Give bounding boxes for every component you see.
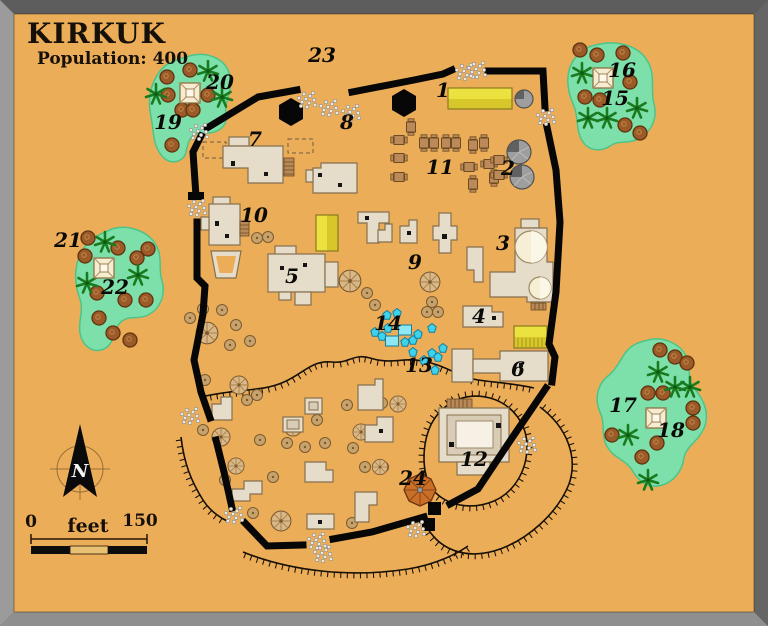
tree-icon bbox=[680, 356, 694, 370]
cliff-tick bbox=[572, 457, 577, 458]
tree-icon bbox=[635, 450, 649, 464]
cliff-tick bbox=[419, 448, 424, 449]
hut-icon bbox=[312, 415, 323, 426]
hut-icon bbox=[185, 313, 196, 324]
scale-unit: feet bbox=[67, 515, 108, 537]
hut-icon bbox=[282, 438, 293, 449]
scale-start: 0 bbox=[25, 512, 37, 532]
tree-icon bbox=[160, 70, 174, 84]
wall-tower-south-1 bbox=[428, 502, 441, 515]
market-stall-icon bbox=[442, 135, 451, 151]
tree-icon bbox=[641, 386, 655, 400]
cliff-tick bbox=[476, 506, 477, 511]
cliff-tick bbox=[478, 380, 479, 385]
tree-icon bbox=[92, 311, 106, 325]
cliff-tick bbox=[321, 571, 322, 576]
map-page: 123456789101112131415161718192021222324 … bbox=[0, 0, 768, 626]
tree-icon bbox=[686, 416, 700, 430]
marker-15: 15 bbox=[601, 86, 629, 110]
cliff-tick bbox=[510, 384, 511, 389]
market-stall-icon bbox=[469, 137, 478, 153]
market-stall-icon bbox=[391, 136, 407, 145]
marker-22: 22 bbox=[100, 275, 129, 299]
hut-icon bbox=[248, 508, 259, 519]
marker-17: 17 bbox=[609, 393, 637, 417]
marker-21: 21 bbox=[53, 228, 82, 252]
yellow-house-center bbox=[316, 215, 338, 251]
tree-icon bbox=[573, 43, 587, 57]
marker-5: 5 bbox=[285, 264, 299, 288]
hut-icon bbox=[242, 395, 253, 406]
tree-icon bbox=[578, 90, 592, 104]
tree-icon bbox=[130, 251, 144, 265]
tree-icon bbox=[653, 343, 667, 357]
marker-3: 3 bbox=[496, 231, 510, 255]
tent-icon bbox=[228, 458, 244, 474]
tree-icon bbox=[106, 326, 120, 340]
tree-icon bbox=[186, 103, 200, 117]
hut-icon bbox=[245, 336, 256, 347]
marker-23: 23 bbox=[307, 43, 336, 67]
market-stall-icon bbox=[469, 176, 478, 192]
market-stall-icon bbox=[407, 119, 416, 135]
hut-icon bbox=[362, 288, 373, 299]
tent-icon bbox=[339, 270, 361, 292]
scale-end: 150 bbox=[122, 511, 158, 531]
hut-icon bbox=[320, 438, 331, 449]
market-stall-icon bbox=[391, 173, 407, 182]
market-stall-icon bbox=[430, 135, 439, 151]
hut-icon bbox=[360, 462, 371, 473]
hut-icon bbox=[217, 305, 228, 316]
marker-9: 9 bbox=[408, 250, 422, 274]
tent-icon bbox=[420, 272, 440, 292]
building-6 bbox=[452, 349, 548, 382]
map-subtitle: Population: 400 bbox=[37, 49, 188, 69]
market-stall-icon bbox=[420, 135, 429, 151]
marker-13: 13 bbox=[405, 353, 433, 377]
house-near-7 bbox=[306, 163, 357, 193]
marker-7: 7 bbox=[248, 127, 262, 151]
hut-icon bbox=[422, 307, 433, 318]
marker-20: 20 bbox=[205, 70, 234, 94]
tree-icon bbox=[605, 428, 619, 442]
tree-icon bbox=[81, 231, 95, 245]
marker-10: 10 bbox=[240, 203, 268, 227]
tree-icon bbox=[139, 293, 153, 307]
market-stall-icon bbox=[480, 135, 489, 151]
marker-18: 18 bbox=[657, 418, 685, 442]
cliff-tick bbox=[393, 571, 394, 576]
cliff-tick bbox=[399, 570, 400, 575]
marker-12: 12 bbox=[460, 447, 488, 471]
marker-2: 2 bbox=[500, 156, 515, 180]
cliff-tick bbox=[314, 570, 315, 575]
market-stall-icon bbox=[461, 163, 477, 172]
marker-1: 1 bbox=[436, 78, 450, 102]
cliff-tick bbox=[497, 382, 498, 387]
hut-icon bbox=[268, 472, 279, 483]
tree-icon bbox=[165, 138, 179, 152]
tent-icon bbox=[271, 511, 291, 531]
marker-16: 16 bbox=[608, 58, 636, 82]
tent-icon bbox=[230, 376, 248, 394]
tree-icon bbox=[633, 126, 647, 140]
water-pool-icon bbox=[386, 336, 399, 346]
tent-icon bbox=[390, 396, 406, 412]
marker-4: 4 bbox=[472, 304, 486, 328]
cliff-tick bbox=[359, 357, 360, 362]
marker-14: 14 bbox=[374, 311, 402, 335]
cliff-tick bbox=[482, 553, 483, 558]
tree-icon bbox=[590, 48, 604, 62]
tree-icon bbox=[686, 401, 700, 415]
frame-bottom bbox=[0, 612, 768, 626]
cliff-tick bbox=[484, 381, 485, 386]
north-label: N bbox=[71, 461, 90, 482]
hut-icon bbox=[300, 442, 311, 453]
cliff-tick bbox=[491, 382, 492, 387]
frame-top bbox=[0, 0, 768, 14]
tent-icon bbox=[372, 459, 387, 474]
hut-icon bbox=[252, 233, 263, 244]
frame-left bbox=[0, 0, 14, 626]
building-1-yellow-hall bbox=[448, 88, 512, 109]
marker-19: 19 bbox=[154, 110, 182, 134]
tree-icon bbox=[618, 118, 632, 132]
cliff-tick bbox=[572, 471, 577, 472]
town-map-svg: 123456789101112131415161718192021222324 … bbox=[0, 0, 768, 626]
hut-icon bbox=[370, 300, 381, 311]
wall-gatepost bbox=[188, 192, 204, 200]
hut-icon bbox=[348, 443, 359, 454]
marker-8: 8 bbox=[339, 110, 354, 134]
marker-6: 6 bbox=[511, 357, 525, 381]
cliff-tick bbox=[527, 454, 532, 455]
hut-icon bbox=[252, 390, 263, 401]
cliff-tick bbox=[504, 383, 505, 388]
camp-icon bbox=[180, 83, 200, 103]
hut-icon bbox=[231, 320, 242, 331]
hut-icon bbox=[198, 425, 209, 436]
map-title: KIRKUK bbox=[27, 17, 166, 50]
hut-icon bbox=[255, 435, 266, 446]
cliff-tick bbox=[176, 440, 181, 441]
hut-icon bbox=[342, 400, 353, 411]
marker-24: 24 bbox=[398, 466, 427, 490]
title-block: KIRKUK Population: 400 bbox=[27, 17, 188, 69]
cliff-tick bbox=[463, 506, 464, 511]
hut-icon bbox=[225, 340, 236, 351]
hut-icon bbox=[263, 232, 274, 243]
hut-icon bbox=[433, 307, 444, 318]
yellow-house-east bbox=[514, 326, 547, 348]
frame-right bbox=[754, 0, 768, 626]
market-stall-icon bbox=[391, 154, 407, 163]
market-stall-icon bbox=[452, 135, 461, 151]
hut-icon bbox=[427, 297, 438, 308]
marker-11: 11 bbox=[426, 155, 454, 179]
tree-icon bbox=[123, 333, 137, 347]
